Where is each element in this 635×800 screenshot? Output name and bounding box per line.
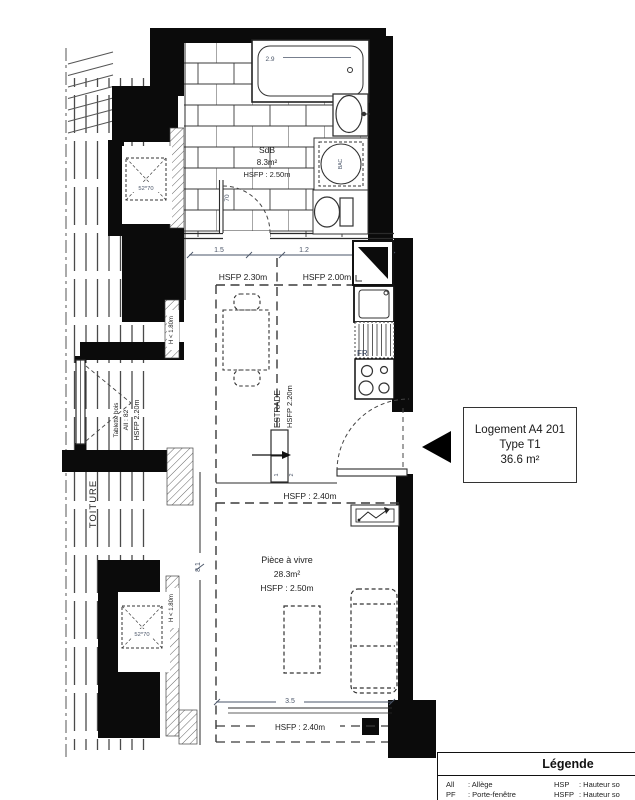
legend-header: Légende <box>438 753 635 776</box>
legend-abbr-right: HSFP <box>554 790 574 799</box>
floor-plan-drawing: TOITURE <box>0 0 635 800</box>
legend-abbr-left: PF <box>446 790 456 799</box>
shower-tray-label: BAC <box>338 158 344 169</box>
unit-label-box: Logement A4 201 Type T1 36.6 m² <box>463 407 577 483</box>
estrade-ceiling-label: HSFP 2.20m <box>285 385 294 428</box>
kitchen-dim-right: 1.2 <box>299 247 309 254</box>
floor-plan-sheet: TOITURE <box>0 0 635 800</box>
fridge-label: FR <box>357 349 368 358</box>
alcove-sill-label: All : 82 <box>123 409 130 430</box>
legend-panel: Légende All : Allège HSP : Hauteur so PF… <box>437 752 635 800</box>
kitchen-dim-left: 1.5 <box>214 247 224 254</box>
fridge: FR <box>355 322 394 358</box>
living-ceiling-height: HSFP : 2.50m <box>260 583 313 593</box>
legend-abbr-left: All <box>446 780 454 789</box>
bathroom-ceiling-height: HSFP : 2.50m <box>244 170 291 179</box>
sofa <box>351 589 397 693</box>
step-number-2: 2 <box>289 473 295 476</box>
ceiling-lower-label: HSFP : 2.40m <box>275 723 325 732</box>
entrance-arrow-icon <box>422 431 451 463</box>
kitchen-sink <box>354 286 394 322</box>
living-area: 28.3m² <box>274 569 301 579</box>
living-height-dim: 8.1 <box>195 562 202 572</box>
unit-name: Logement A4 201 <box>475 423 565 438</box>
dining-table <box>223 294 269 386</box>
ceiling-upper-label: HSFP : 2.40m <box>283 491 336 501</box>
low-height-mid-label: H < 1.80m <box>169 316 175 344</box>
legend-row: All : Allège HSP : Hauteur so <box>438 780 635 790</box>
step-number-1: 1 <box>274 473 280 476</box>
living-name: Pièce à vivre <box>261 555 313 565</box>
toilet <box>313 190 368 234</box>
legend-desc-right: : Hauteur so <box>579 790 620 799</box>
entry <box>337 399 451 526</box>
unit-type: Type T1 <box>499 438 540 453</box>
radiator <box>351 505 399 526</box>
shower-tray: BAC <box>314 138 368 190</box>
skylight-bottom-dim: 52*70 <box>134 632 149 638</box>
bathroom-sink <box>333 94 370 136</box>
legend-desc-right: : Hauteur so <box>579 780 620 789</box>
roof-label: TOITURE <box>88 480 99 529</box>
bathroom-name: SdB <box>259 145 275 155</box>
legend-row: PF : Porte-fenêtre HSFP : Hauteur so <box>438 790 635 800</box>
legend-title: Légende <box>542 757 593 771</box>
alcove-ceiling-label: HSFP 2.20m <box>132 399 141 440</box>
ceiling-left-label: HSFP 2.30m <box>219 272 268 282</box>
alcove-shelf-label: Tablette bois <box>113 403 120 438</box>
bathroom-area: 8.3m² <box>257 158 278 167</box>
skylight-top-dim: 52*70 <box>138 186 153 192</box>
cooktop <box>355 359 394 399</box>
entrance-door <box>337 469 407 476</box>
bathtub-dim: 2.9 <box>265 56 274 63</box>
ceiling-right-label: HSFP 2.00m <box>303 272 352 282</box>
door-width-dim: 70 <box>224 194 231 202</box>
technical-duct <box>353 241 393 285</box>
estrade-label: ESTRADE <box>273 390 282 428</box>
legend-abbr-right: HSP <box>554 780 569 789</box>
skylight-top: 52*70 <box>122 146 172 224</box>
living-width-dim: 3.5 <box>285 698 295 705</box>
coffee-table <box>284 606 320 673</box>
legend-rows: All : Allège HSP : Hauteur so PF : Porte… <box>438 776 635 799</box>
low-height-bottom-label: H < 1.80m <box>169 594 175 622</box>
skylight-bottom: 52*70 <box>118 592 170 672</box>
legend-desc-left: : Allège <box>468 780 493 789</box>
bathtub: 2.9 <box>252 40 369 102</box>
legend-desc-left: : Porte-fenêtre <box>468 790 516 799</box>
unit-area: 36.6 m² <box>501 453 540 468</box>
